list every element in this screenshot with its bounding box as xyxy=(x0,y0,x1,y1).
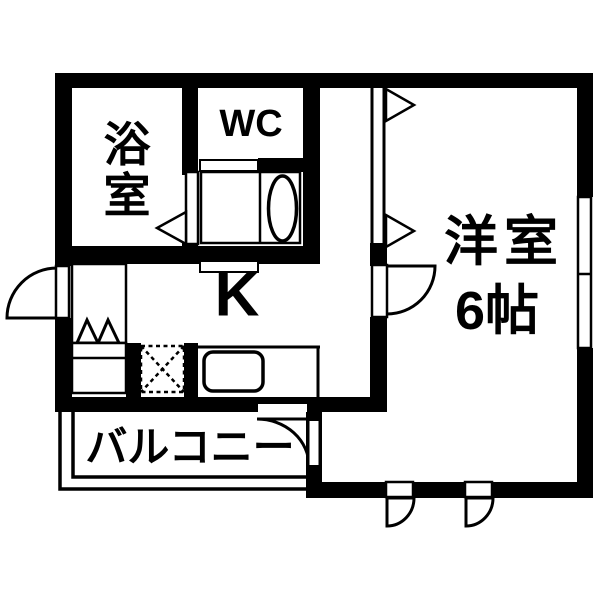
toilet-icon xyxy=(269,176,297,241)
toilet-label: WC xyxy=(219,103,282,145)
wall-wc-south xyxy=(258,158,303,172)
wall-bath-east-upper xyxy=(182,88,198,175)
wall-top xyxy=(55,73,593,88)
bathroom-door-leaf xyxy=(186,172,198,244)
floorplan-image: 浴室 WC K 洋室 6帖 バルコニー xyxy=(0,0,600,600)
kitchen-room-door-leaf xyxy=(372,265,387,317)
wall-right-upper xyxy=(577,88,593,197)
floorplan-svg: 浴室 WC K 洋室 6帖 バルコニー xyxy=(0,0,600,600)
entrance-door-leaf xyxy=(56,266,69,318)
wc-upper-slide-panel xyxy=(200,160,258,171)
kitchen-sink-icon xyxy=(204,352,263,391)
western-room-size-label: 6帖 xyxy=(455,281,539,341)
wall-kitchen-south xyxy=(55,397,387,412)
wall-right-lower xyxy=(577,348,593,482)
wall-left-lower xyxy=(55,318,72,403)
window-right xyxy=(578,197,591,348)
balcony-wall-opening xyxy=(258,404,307,412)
balcony-label: バルコニー xyxy=(85,424,294,471)
window-icon xyxy=(578,197,591,348)
balcony-door-pocket xyxy=(309,420,320,466)
kitchen-cabinet-upper xyxy=(72,264,126,343)
wall-bath-east-lower xyxy=(182,243,198,264)
wall-partition-mid xyxy=(370,243,387,266)
kitchen-cabinet-lower xyxy=(72,343,126,393)
wall-left-upper xyxy=(55,88,72,266)
bottom-door-leaf xyxy=(386,482,413,497)
wall-partition-low xyxy=(370,317,387,397)
wall-counter-chunk-left xyxy=(126,343,141,397)
western-room-label: 洋室 xyxy=(444,212,564,272)
washing-machine-icon xyxy=(141,346,184,392)
wall-wc-east xyxy=(303,88,320,264)
bottom-door-leaf xyxy=(465,482,492,497)
kitchen-label: K xyxy=(215,261,260,330)
wall-counter-chunk-right xyxy=(184,343,198,397)
toilet-fixture xyxy=(201,172,300,243)
wall-bottom xyxy=(306,482,593,498)
bathroom-label: 浴室 xyxy=(104,118,152,222)
